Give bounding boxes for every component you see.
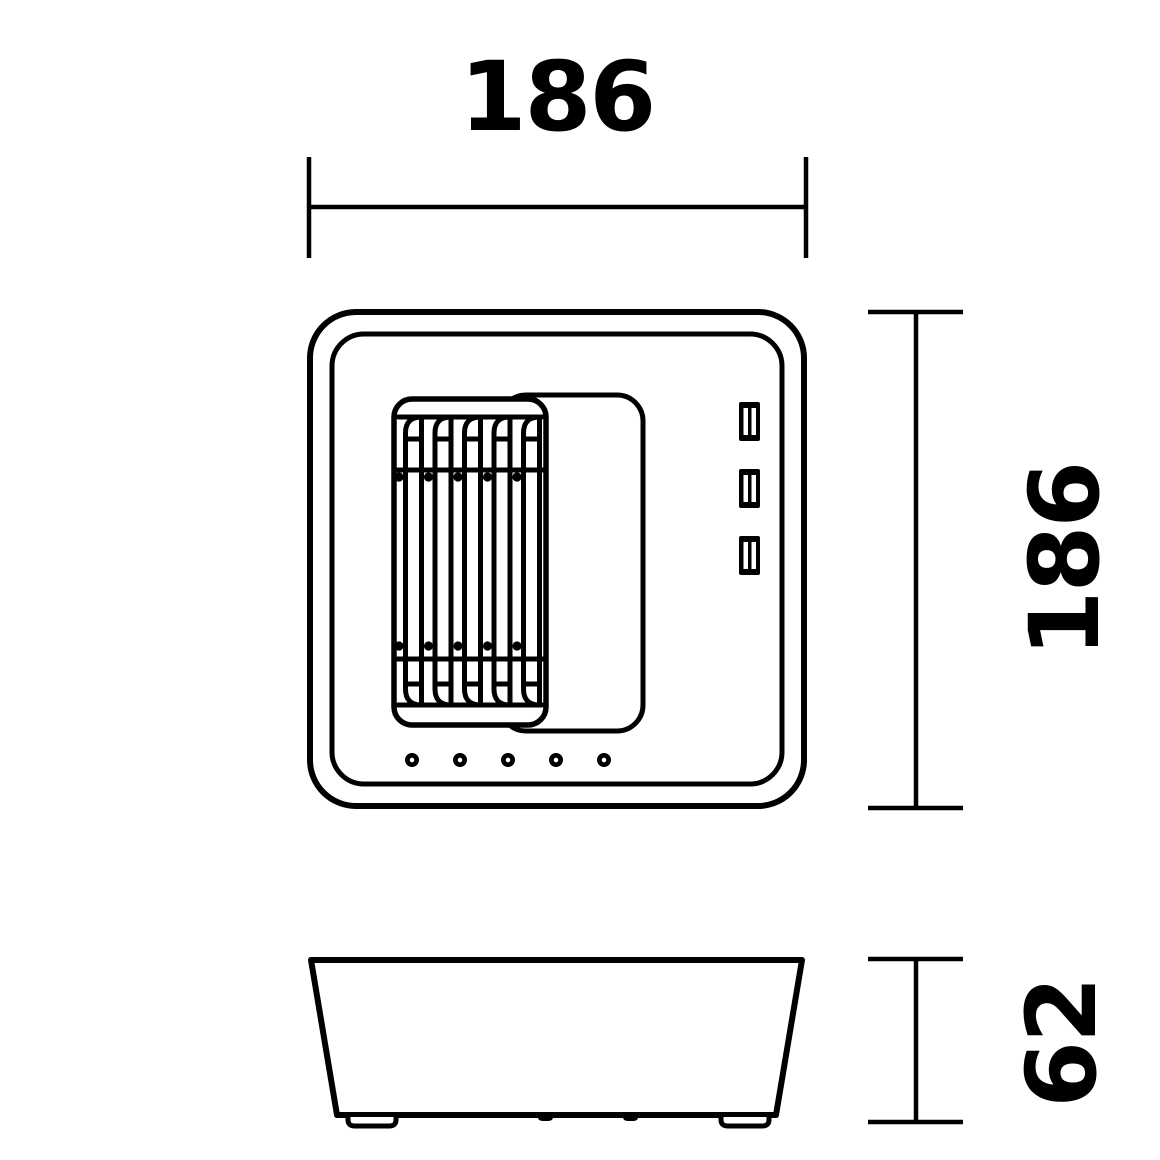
device-screw-bump: [623, 1115, 638, 1121]
front-view: [310, 312, 804, 806]
height-dimension: 186: [868, 312, 1121, 808]
device-foot-left: [348, 1117, 396, 1126]
width-dimension-label: 186: [460, 41, 654, 153]
grille-rivet: [453, 641, 462, 650]
usb-port-slot: [744, 475, 749, 502]
grille-rivet: [512, 641, 521, 650]
usb-port-slot: [744, 542, 749, 569]
led-indicator: [405, 753, 419, 767]
led-indicator: [453, 753, 467, 767]
side-view: [311, 960, 802, 1126]
device-foot-right: [721, 1117, 769, 1126]
led-center: [602, 758, 607, 763]
usb-port: [739, 469, 760, 508]
led-center: [554, 758, 559, 763]
led-center: [410, 758, 415, 763]
usb-port-slot: [752, 542, 757, 569]
grille-rivet: [424, 641, 433, 650]
led-indicator: [597, 753, 611, 767]
led-indicator: [549, 753, 563, 767]
led-center: [458, 758, 463, 763]
usb-port-body: [739, 469, 760, 508]
usb-port-slot: [744, 408, 749, 435]
grille-rivet: [394, 641, 403, 650]
usb-port-slot: [752, 475, 757, 502]
depth-dimension-label: 62: [1006, 978, 1118, 1108]
grille-rivet: [453, 472, 462, 481]
led-center: [506, 758, 511, 763]
led-indicators: [405, 753, 611, 767]
side-view-outline: [311, 960, 802, 1115]
grille-rivet: [424, 472, 433, 481]
grille-rivet: [512, 472, 521, 481]
led-indicator: [501, 753, 515, 767]
usb-port: [739, 402, 760, 441]
usb-port-slot: [752, 408, 757, 435]
height-dimension-label: 186: [1009, 463, 1121, 657]
dimension-drawing-canvas: 186: [0, 0, 1160, 1160]
usb-port: [739, 536, 760, 575]
grille-rivet: [394, 472, 403, 481]
width-dimension: 186: [309, 41, 806, 258]
depth-dimension: 62: [868, 959, 1118, 1122]
grille-rivet: [483, 641, 492, 650]
grille-rivet: [483, 472, 492, 481]
ventilation-grille: [394, 399, 546, 725]
technical-dimension-drawing: 186: [0, 0, 1160, 1160]
usb-port-body: [739, 402, 760, 441]
usb-ports: [739, 402, 760, 575]
usb-port-body: [739, 536, 760, 575]
device-screw-bump: [538, 1115, 553, 1121]
